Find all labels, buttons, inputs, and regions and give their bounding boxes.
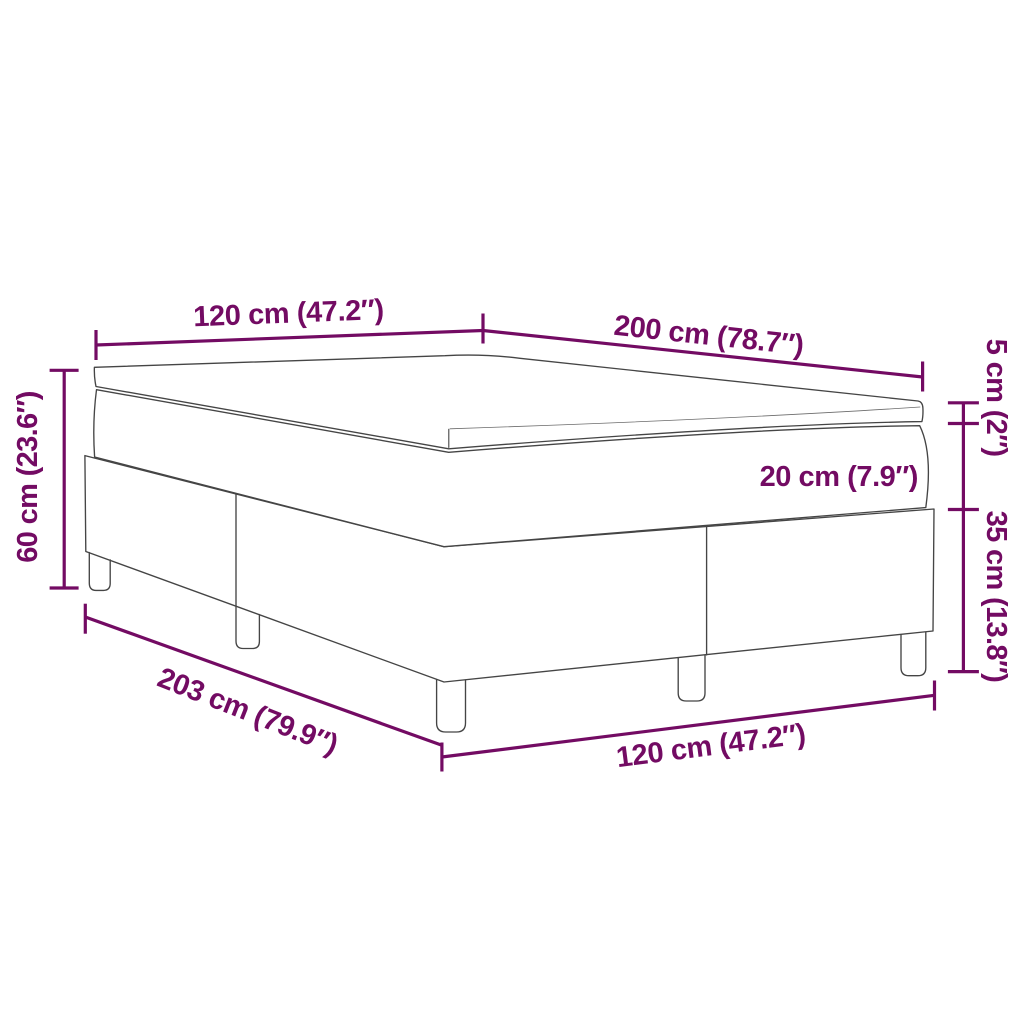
svg-text:5 cm (2″): 5 cm (2″) <box>980 339 1012 457</box>
svg-text:35 cm (13.8″): 35 cm (13.8″) <box>980 511 1012 682</box>
svg-text:60 cm (23.6″): 60 cm (23.6″) <box>12 391 44 562</box>
svg-text:20 cm (7.9″): 20 cm (7.9″) <box>760 461 918 493</box>
